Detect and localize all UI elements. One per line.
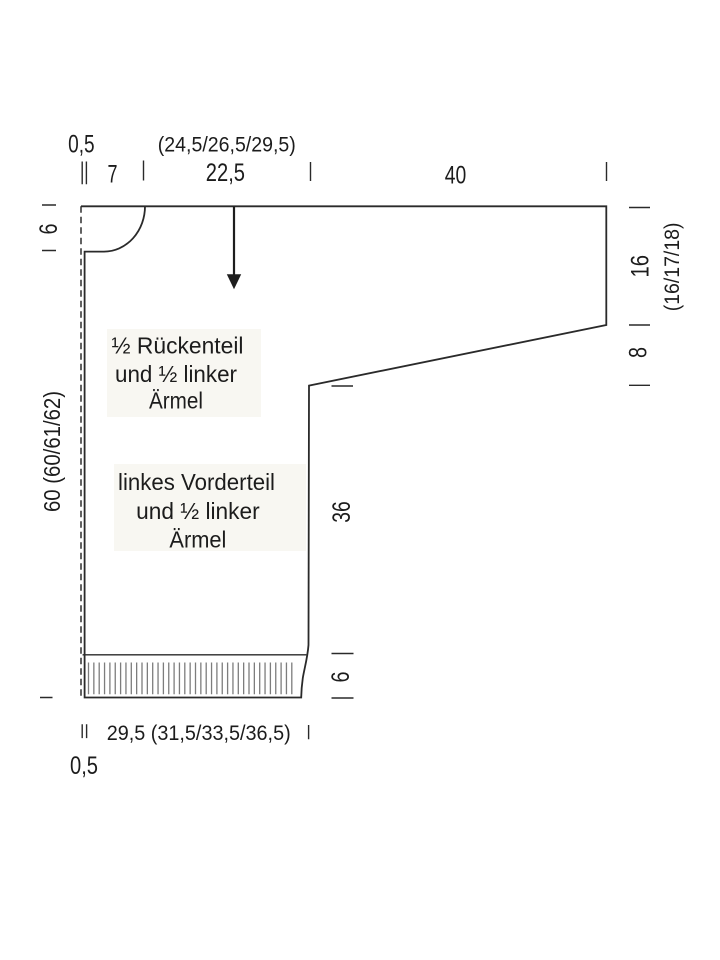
svg-text:60 (60/61/62): 60 (60/61/62) xyxy=(39,391,65,512)
svg-text:8: 8 xyxy=(625,347,653,358)
svg-text:und ½ linker: und ½ linker xyxy=(136,498,260,524)
svg-text:Ärmel: Ärmel xyxy=(149,388,203,414)
svg-text:29,5 (31,5/33,5/36,5): 29,5 (31,5/33,5/36,5) xyxy=(107,721,291,745)
svg-text:0,5: 0,5 xyxy=(70,752,98,780)
svg-text:6: 6 xyxy=(35,224,63,235)
svg-text:0,5: 0,5 xyxy=(68,130,95,158)
svg-text:(16/17/18): (16/17/18) xyxy=(660,223,684,312)
svg-text:linkes Vorderteil: linkes Vorderteil xyxy=(118,469,275,495)
svg-text:40: 40 xyxy=(445,162,467,190)
svg-text:Ärmel: Ärmel xyxy=(169,527,226,553)
svg-text:½ Rückenteil: ½ Rückenteil xyxy=(112,333,244,359)
svg-text:und ½ linker: und ½ linker xyxy=(115,361,237,387)
svg-text:7: 7 xyxy=(108,161,118,189)
svg-text:6: 6 xyxy=(327,672,355,683)
svg-text:22,5: 22,5 xyxy=(206,159,245,187)
svg-text:36: 36 xyxy=(328,501,356,523)
svg-text:(24,5/26,5/29,5): (24,5/26,5/29,5) xyxy=(158,133,296,157)
svg-text:16: 16 xyxy=(627,255,655,278)
